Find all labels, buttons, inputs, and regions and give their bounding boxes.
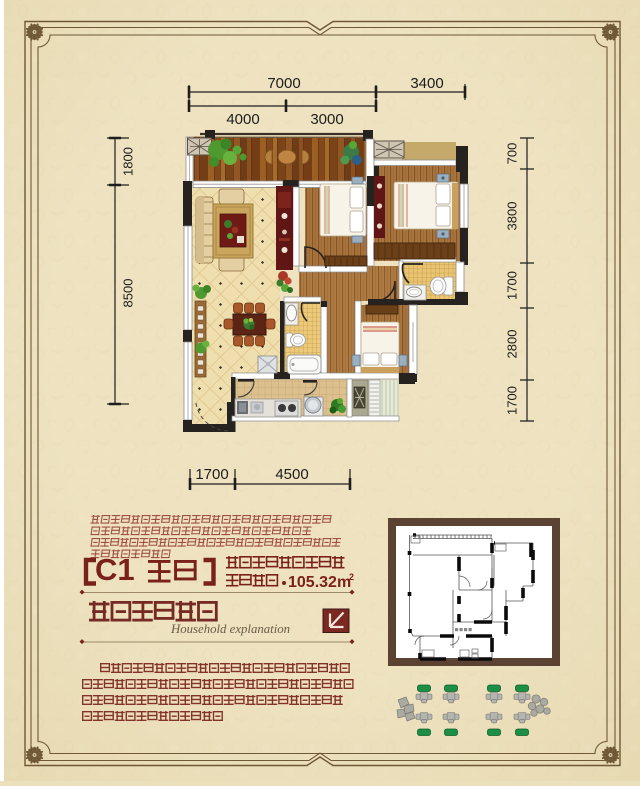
svg-text:3000: 3000 [310, 111, 343, 128]
svg-text:105.32m: 105.32m [288, 574, 351, 591]
svg-text:C1: C1 [95, 552, 135, 587]
svg-text:1700: 1700 [504, 271, 519, 300]
svg-text:1700: 1700 [195, 466, 228, 483]
svg-text:2: 2 [349, 572, 354, 582]
svg-text:700: 700 [504, 143, 519, 165]
svg-text:3400: 3400 [410, 75, 443, 92]
svg-text:2800: 2800 [504, 330, 519, 359]
svg-text:3800: 3800 [504, 202, 519, 231]
svg-text:4000: 4000 [226, 111, 259, 128]
svg-text:1800: 1800 [120, 147, 135, 176]
svg-text:7000: 7000 [267, 75, 300, 92]
svg-text:8500: 8500 [120, 279, 135, 308]
svg-text:4500: 4500 [275, 466, 308, 483]
svg-text:Household explanation: Household explanation [170, 622, 290, 636]
svg-text:1700: 1700 [504, 386, 519, 415]
